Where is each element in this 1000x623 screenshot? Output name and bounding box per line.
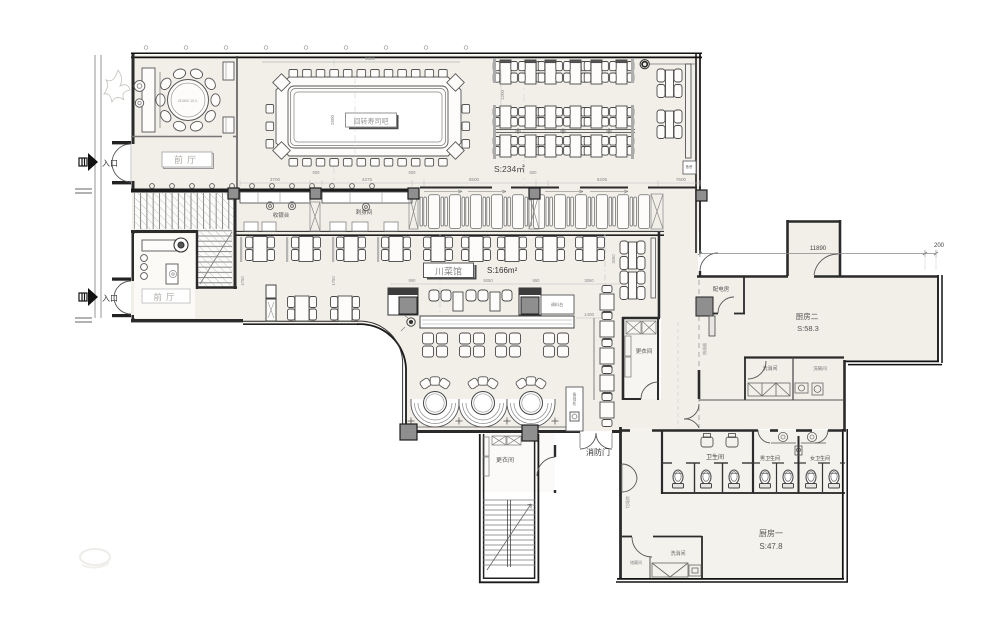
- svg-text:500: 500: [313, 170, 321, 175]
- svg-text:男卫生间: 男卫生间: [760, 455, 780, 462]
- svg-text:消防门: 消防门: [586, 447, 610, 457]
- svg-text:垃圾房: 垃圾房: [624, 496, 630, 508]
- svg-text:1400: 1400: [584, 312, 595, 317]
- svg-text:Ø1500 10人: Ø1500 10人: [178, 98, 198, 103]
- svg-text:厨房二: 厨房二: [796, 311, 819, 321]
- svg-text:洗消间: 洗消间: [670, 550, 685, 557]
- svg-text:储藏间: 储藏间: [630, 559, 642, 565]
- svg-text:收银台: 收银台: [273, 211, 290, 219]
- svg-text:备: 备: [573, 392, 577, 397]
- svg-text:餐: 餐: [573, 397, 577, 402]
- svg-text:200: 200: [934, 243, 945, 249]
- svg-text:7600: 7600: [676, 177, 687, 182]
- svg-text:950: 950: [409, 278, 417, 283]
- svg-text:5500: 5500: [469, 177, 480, 182]
- svg-text:500: 500: [530, 170, 538, 175]
- svg-text:热油器: 热油器: [701, 343, 707, 355]
- svg-text:2600: 2600: [330, 114, 335, 125]
- svg-text:6205: 6205: [597, 177, 608, 182]
- svg-text:入口: 入口: [102, 159, 118, 168]
- svg-text:入口: 入口: [102, 294, 118, 303]
- svg-text:更衣间: 更衣间: [496, 456, 514, 464]
- svg-text:5050: 5050: [483, 278, 493, 283]
- svg-text:女卫生间: 女卫生间: [810, 455, 830, 462]
- svg-text:洗碗间: 洗碗间: [813, 365, 827, 372]
- svg-text:S:58.3: S:58.3: [797, 324, 819, 333]
- svg-text:3700: 3700: [270, 177, 281, 182]
- svg-text:备餐: 备餐: [686, 164, 693, 169]
- svg-text:3050: 3050: [611, 254, 616, 264]
- svg-text:更衣间: 更衣间: [636, 347, 653, 355]
- svg-text:卫生间: 卫生间: [706, 453, 724, 461]
- svg-text:厨房一: 厨房一: [759, 528, 783, 538]
- svg-text:4375: 4375: [362, 177, 373, 182]
- svg-text:S:234㎡: S:234㎡: [494, 164, 525, 174]
- svg-text:配电房: 配电房: [713, 285, 730, 293]
- svg-text:4750: 4750: [240, 276, 245, 286]
- svg-text:回转寿司吧: 回转寿司吧: [354, 117, 389, 126]
- svg-text:S:166m²: S:166m²: [487, 266, 518, 275]
- svg-text:11890: 11890: [810, 246, 827, 252]
- svg-text:3060: 3060: [584, 278, 594, 283]
- svg-text:1750: 1750: [331, 276, 336, 286]
- svg-text:调料台: 调料台: [551, 301, 564, 308]
- svg-text:川菜馆: 川菜馆: [435, 266, 462, 277]
- svg-text:柜: 柜: [573, 401, 577, 406]
- svg-text:500: 500: [409, 170, 417, 175]
- svg-text:8800: 8800: [365, 56, 376, 61]
- svg-text:刺身间: 刺身间: [356, 208, 373, 216]
- svg-text:前厅: 前厅: [153, 292, 178, 302]
- svg-text:950: 950: [533, 278, 541, 283]
- svg-text:S:47.8: S:47.8: [759, 542, 783, 551]
- svg-text:洗消间: 洗消间: [762, 365, 777, 372]
- svg-text:前厅: 前厅: [174, 154, 200, 165]
